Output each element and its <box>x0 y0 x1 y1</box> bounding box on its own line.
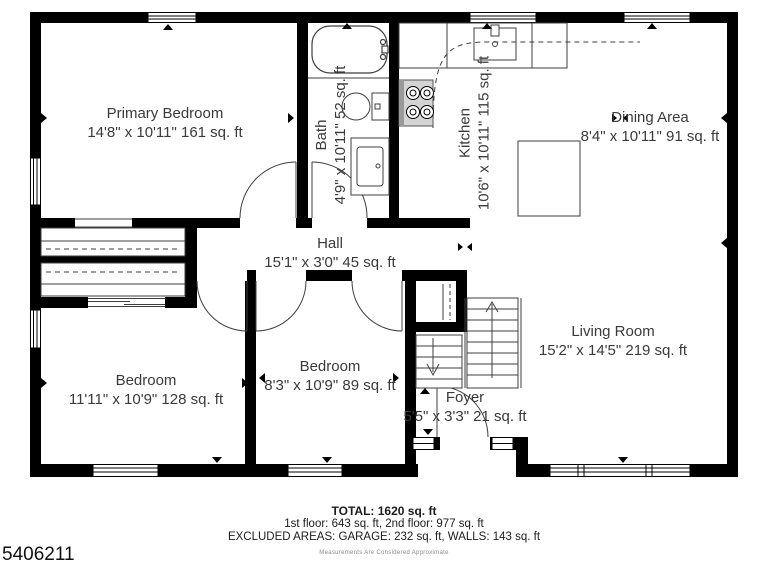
room-label-bedroom-1: Bedroom 11'11" x 10'9" 128 sq. ft <box>36 371 256 409</box>
disclaimer: Measurements Are Considered Approximate <box>0 550 768 556</box>
room-name: Bath <box>312 50 331 220</box>
room-dims: 11'11" x 10'9" 128 sq. ft <box>36 390 256 409</box>
room-name: Bedroom <box>36 371 256 390</box>
room-dims: 15'2" x 14'5" 219 sq. ft <box>503 341 723 360</box>
room-label-hall: Hall 15'1" x 3'0" 45 sq. ft <box>230 234 430 272</box>
window-bedroom1-left <box>31 310 41 348</box>
stove <box>399 80 434 126</box>
room-label-dining-area: Dining Area 8'4" x 10'11" 91 sq. ft <box>555 108 745 146</box>
bath-vanity-sink <box>351 138 389 195</box>
floor-plan-drawing <box>0 0 768 576</box>
room-label-living-room: Living Room 15'2" x 14'5" 219 sq. ft <box>503 322 723 360</box>
listing-id: 5406211 <box>2 544 75 566</box>
floor-areas: 1st floor: 643 sq. ft, 2nd floor: 977 sq… <box>0 518 768 531</box>
window-kitchen-top <box>470 13 536 23</box>
room-name: Kitchen <box>456 41 475 226</box>
room-name: Primary Bedroom <box>40 104 290 123</box>
window-primary-bedroom-left <box>31 158 41 205</box>
kitchen-island-table <box>518 141 580 216</box>
room-dims: 5'5" x 3'3" 21 sq. ft <box>355 407 575 426</box>
room-name: Hall <box>230 234 430 253</box>
area-summary: TOTAL: 1620 sq. ft 1st floor: 643 sq. ft… <box>0 505 768 556</box>
room-dims: 10'6" x 10'11" 115 sq. ft <box>475 41 494 226</box>
floor-plan: Primary Bedroom 14'8" x 10'11" 161 sq. f… <box>0 0 768 576</box>
room-dims: 4'9" x 10'11" 52 sq. ft <box>331 50 350 220</box>
excluded-areas: EXCLUDED AREAS: GARAGE: 232 sq. ft, WALL… <box>0 531 768 544</box>
room-name: Living Room <box>503 322 723 341</box>
room-name: Dining Area <box>555 108 745 127</box>
closet-rod <box>443 284 450 320</box>
entry-sidelight-right <box>492 438 513 450</box>
room-name: Bedroom <box>240 357 420 376</box>
window-bedroom1-bottom <box>93 465 158 477</box>
bedroom2-door <box>256 281 306 331</box>
room-label-bath: Bath 4'9" x 10'11" 52 sq. ft <box>312 50 350 220</box>
room-dims: 14'8" x 10'11" 161 sq. ft <box>40 123 290 142</box>
room-label-foyer: Foyer 5'5" x 3'3" 21 sq. ft <box>355 388 575 426</box>
window-primary-bedroom-top <box>148 13 196 23</box>
total-area: TOTAL: 1620 sq. ft <box>0 505 768 518</box>
entry-sidelight-left <box>413 438 434 450</box>
window-living-room-bottom <box>550 464 690 477</box>
closet-door <box>352 281 402 331</box>
room-dims: 8'4" x 10'11" 91 sq. ft <box>555 127 745 146</box>
window-dining-top <box>624 13 690 23</box>
room-label-primary-bedroom: Primary Bedroom 14'8" x 10'11" 161 sq. f… <box>40 104 290 142</box>
room-label-kitchen: Kitchen 10'6" x 10'11" 115 sq. ft <box>456 41 494 226</box>
primary-bedroom-door <box>240 162 296 218</box>
bedroom1-door <box>197 281 247 331</box>
room-dims: 15'1" x 3'0" 45 sq. ft <box>230 253 430 272</box>
room-name: Foyer <box>355 388 575 407</box>
window-bedroom2-bottom <box>288 465 342 477</box>
